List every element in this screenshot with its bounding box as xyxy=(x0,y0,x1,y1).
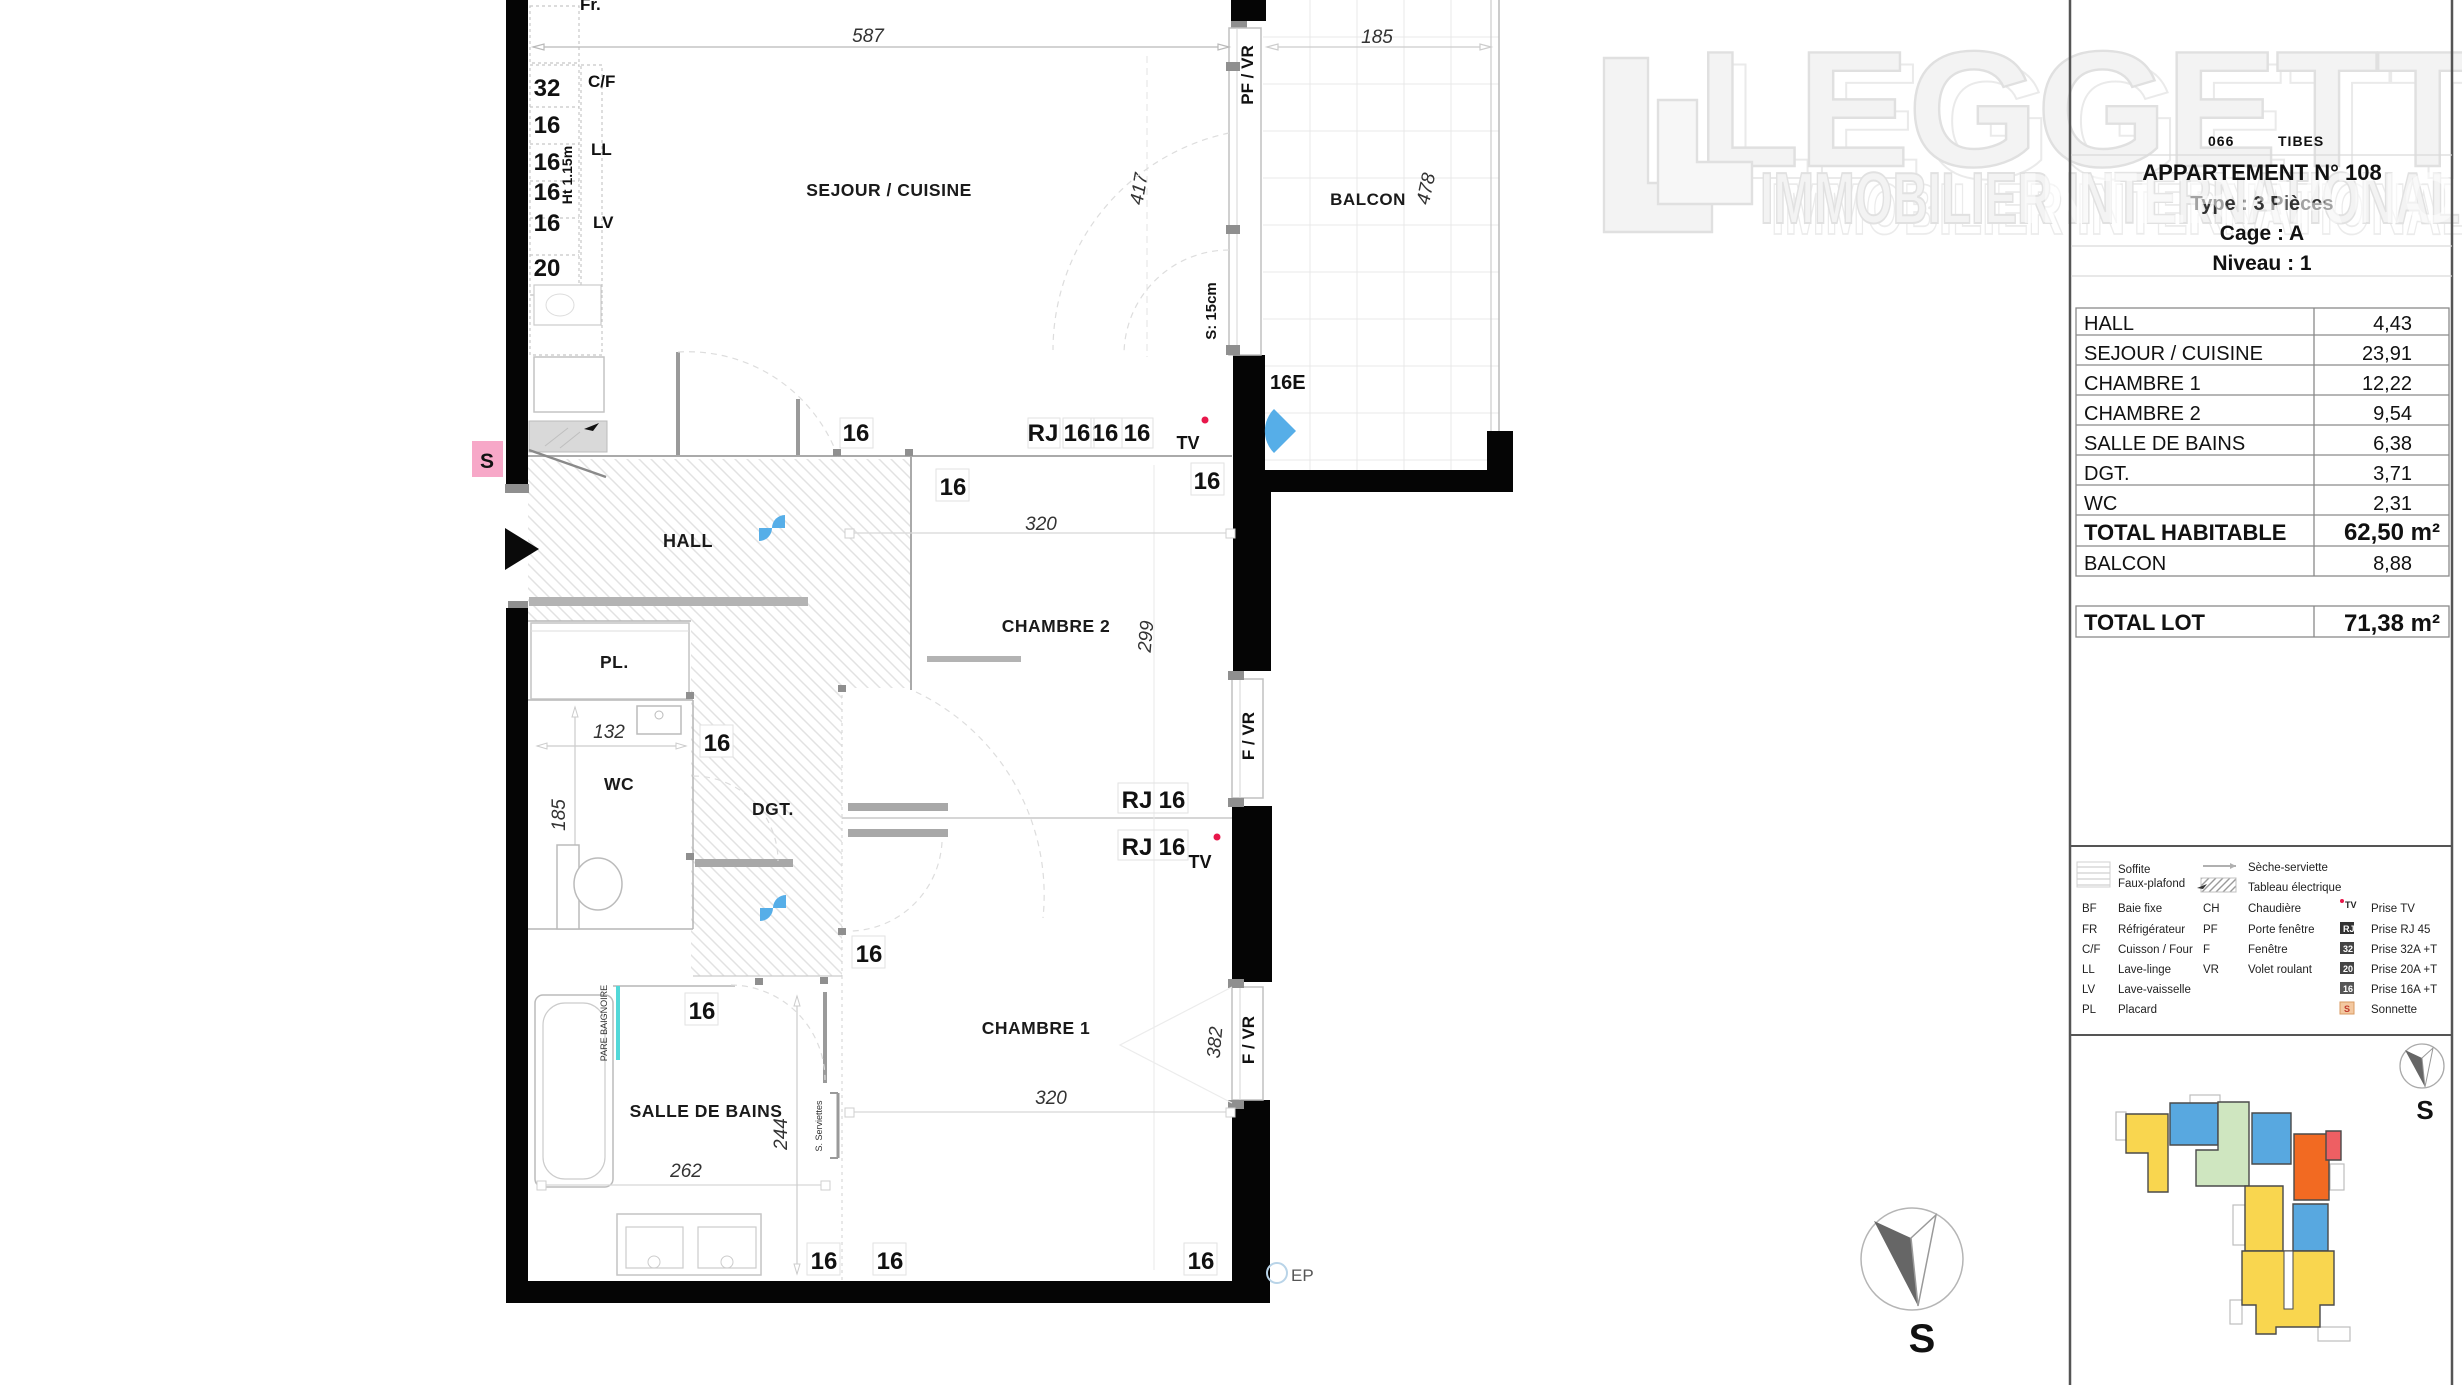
svg-text:WC: WC xyxy=(2084,493,2117,515)
svg-text:DGT.: DGT. xyxy=(752,799,794,819)
svg-text:S: S xyxy=(480,450,494,473)
svg-text:LL: LL xyxy=(2082,964,2095,976)
svg-text:382: 382 xyxy=(1204,1025,1228,1059)
svg-text:32: 32 xyxy=(534,75,561,102)
svg-text:Soffite: Soffite xyxy=(2118,864,2150,876)
svg-text:BALCON: BALCON xyxy=(1330,190,1406,209)
svg-text:32: 32 xyxy=(2343,944,2353,954)
svg-text:244: 244 xyxy=(771,1118,792,1151)
svg-text:TOTAL LOT: TOTAL LOT xyxy=(2084,610,2206,635)
svg-text:PF / VR: PF / VR xyxy=(1238,45,1257,105)
svg-text:Fenêtre: Fenêtre xyxy=(2248,944,2288,956)
svg-text:2,31: 2,31 xyxy=(2373,493,2412,515)
svg-text:16: 16 xyxy=(856,941,883,968)
svg-text:RJ: RJ xyxy=(1028,420,1059,447)
svg-text:SEJOUR / CUISINE: SEJOUR / CUISINE xyxy=(2084,343,2263,365)
svg-text:4,43: 4,43 xyxy=(2373,313,2412,335)
svg-text:16: 16 xyxy=(689,998,716,1025)
svg-text:WC: WC xyxy=(604,774,634,794)
svg-text:Volet roulant: Volet roulant xyxy=(2248,964,2313,976)
svg-text:20: 20 xyxy=(534,255,561,282)
svg-text:Prise 20A +T: Prise 20A +T xyxy=(2371,964,2437,976)
svg-text:320: 320 xyxy=(1035,1088,1067,1109)
svg-text:3,71: 3,71 xyxy=(2373,463,2412,485)
svg-text:CHAMBRE 2: CHAMBRE 2 xyxy=(1002,616,1111,636)
svg-text:TOTAL HABITABLE: TOTAL HABITABLE xyxy=(2084,520,2286,545)
svg-text:PARE BAIGNOIRE: PARE BAIGNOIRE xyxy=(599,985,609,1061)
svg-text:CHAMBRE 2: CHAMBRE 2 xyxy=(2084,403,2201,425)
svg-text:PL: PL xyxy=(2082,1004,2097,1016)
svg-text:VR: VR xyxy=(2203,964,2219,976)
svg-text:S: 15cm: S: 15cm xyxy=(1203,282,1220,340)
svg-text:F / VR: F / VR xyxy=(1239,712,1258,760)
svg-text:RJ: RJ xyxy=(1122,834,1153,861)
svg-text:EP: EP xyxy=(1291,1266,1314,1285)
svg-text:Réfrigérateur: Réfrigérateur xyxy=(2118,924,2185,936)
svg-text:185: 185 xyxy=(549,799,570,831)
svg-text:LL: LL xyxy=(591,140,612,159)
svg-text:Prise 32A +T: Prise 32A +T xyxy=(2371,944,2437,956)
svg-text:CH: CH xyxy=(2203,903,2220,915)
svg-text:16: 16 xyxy=(534,179,561,206)
svg-text:HALL: HALL xyxy=(2084,313,2134,335)
svg-text:Ht 1.15m: Ht 1.15m xyxy=(559,146,575,204)
svg-text:LV: LV xyxy=(2082,984,2096,996)
svg-text:Prise RJ 45: Prise RJ 45 xyxy=(2371,924,2430,936)
svg-text:TV: TV xyxy=(1176,433,1199,453)
svg-text:F: F xyxy=(2203,944,2210,956)
svg-text:16: 16 xyxy=(1124,420,1151,447)
svg-text:SEJOUR / CUISINE: SEJOUR / CUISINE xyxy=(806,180,972,200)
svg-text:Faux-plafond: Faux-plafond xyxy=(2118,878,2185,890)
svg-text:APPARTEMENT N° 108: APPARTEMENT N° 108 xyxy=(2142,160,2381,185)
svg-text:TV: TV xyxy=(2345,900,2357,910)
svg-text:Baie fixe: Baie fixe xyxy=(2118,903,2162,915)
svg-text:066: 066 xyxy=(2208,133,2234,149)
svg-text:16: 16 xyxy=(1159,834,1186,861)
svg-text:20: 20 xyxy=(2343,964,2353,974)
svg-text:16: 16 xyxy=(1159,787,1186,814)
svg-text:LV: LV xyxy=(593,213,614,232)
svg-text:PF: PF xyxy=(2203,924,2218,936)
svg-text:SALLE DE BAINS: SALLE DE BAINS xyxy=(630,1101,783,1121)
svg-text:587: 587 xyxy=(852,26,885,47)
svg-text:CHAMBRE 1: CHAMBRE 1 xyxy=(982,1018,1091,1038)
svg-text:S. Serviettes: S. Serviettes xyxy=(814,1100,824,1152)
svg-text:16: 16 xyxy=(811,1248,838,1275)
svg-text:S: S xyxy=(2416,1095,2433,1125)
svg-text:CHAMBRE 1: CHAMBRE 1 xyxy=(2084,373,2201,395)
svg-text:Lave-linge: Lave-linge xyxy=(2118,964,2171,976)
svg-text:BALCON: BALCON xyxy=(2084,553,2166,575)
svg-text:TV: TV xyxy=(1188,852,1211,872)
svg-text:F / VR: F / VR xyxy=(1239,1016,1258,1064)
svg-text:16: 16 xyxy=(1064,420,1091,447)
svg-text:71,38 m²: 71,38 m² xyxy=(2344,610,2440,637)
svg-text:RJ: RJ xyxy=(1122,787,1153,814)
svg-text:299: 299 xyxy=(1135,619,1159,654)
svg-text:PL.: PL. xyxy=(600,652,629,672)
svg-text:16: 16 xyxy=(877,1248,904,1275)
svg-text:16: 16 xyxy=(843,420,870,447)
svg-text:Lave-vaisselle: Lave-vaisselle xyxy=(2118,984,2191,996)
svg-text:C/F: C/F xyxy=(588,72,615,91)
svg-text:62,50 m²: 62,50 m² xyxy=(2344,519,2440,546)
svg-text:HALL: HALL xyxy=(663,531,713,551)
svg-text:16: 16 xyxy=(1188,1248,1215,1275)
svg-text:6,38: 6,38 xyxy=(2373,433,2412,455)
svg-text:12,22: 12,22 xyxy=(2362,373,2412,395)
svg-text:Niveau : 1: Niveau : 1 xyxy=(2212,252,2312,275)
svg-text:185: 185 xyxy=(1361,27,1393,48)
svg-text:RJ: RJ xyxy=(2343,924,2355,934)
svg-text:Cuisson / Four: Cuisson / Four xyxy=(2118,944,2193,956)
svg-text:16: 16 xyxy=(534,149,561,176)
svg-text:16: 16 xyxy=(534,210,561,237)
svg-text:S: S xyxy=(2344,1004,2350,1014)
svg-text:Porte fenêtre: Porte fenêtre xyxy=(2248,924,2314,936)
svg-text:16: 16 xyxy=(704,730,731,757)
svg-text:Tableau électrique: Tableau électrique xyxy=(2248,882,2341,894)
svg-text:9,54: 9,54 xyxy=(2373,403,2412,425)
svg-text:FR: FR xyxy=(2082,924,2097,936)
svg-text:Sèche-serviette: Sèche-serviette xyxy=(2248,862,2328,874)
svg-text:Sonnette: Sonnette xyxy=(2371,1004,2417,1016)
svg-text:Cage : A: Cage : A xyxy=(2220,222,2304,245)
svg-text:DGT.: DGT. xyxy=(2084,463,2130,485)
svg-text:132: 132 xyxy=(593,722,625,743)
svg-text:16: 16 xyxy=(534,112,561,139)
svg-text:16: 16 xyxy=(2343,984,2353,994)
svg-text:Prise 16A +T: Prise 16A +T xyxy=(2371,984,2437,996)
svg-text:8,88: 8,88 xyxy=(2373,553,2412,575)
svg-text:320: 320 xyxy=(1025,514,1057,535)
svg-text:16: 16 xyxy=(1194,468,1221,495)
svg-text:16: 16 xyxy=(940,474,967,501)
svg-text:16E: 16E xyxy=(1270,372,1306,394)
svg-text:16: 16 xyxy=(1092,420,1119,447)
svg-text:C/F: C/F xyxy=(2082,944,2101,956)
svg-text:SALLE DE BAINS: SALLE DE BAINS xyxy=(2084,433,2245,455)
svg-text:Prise TV: Prise TV xyxy=(2371,903,2415,915)
svg-text:262: 262 xyxy=(669,1161,702,1182)
svg-text:Chaudière: Chaudière xyxy=(2248,903,2301,915)
svg-text:Placard: Placard xyxy=(2118,1004,2157,1016)
svg-text:Fr.: Fr. xyxy=(580,0,601,14)
svg-text:BF: BF xyxy=(2082,903,2097,915)
svg-text:S: S xyxy=(1909,1317,1936,1361)
svg-text:23,91: 23,91 xyxy=(2362,343,2412,365)
svg-text:TIBES: TIBES xyxy=(2278,133,2324,149)
